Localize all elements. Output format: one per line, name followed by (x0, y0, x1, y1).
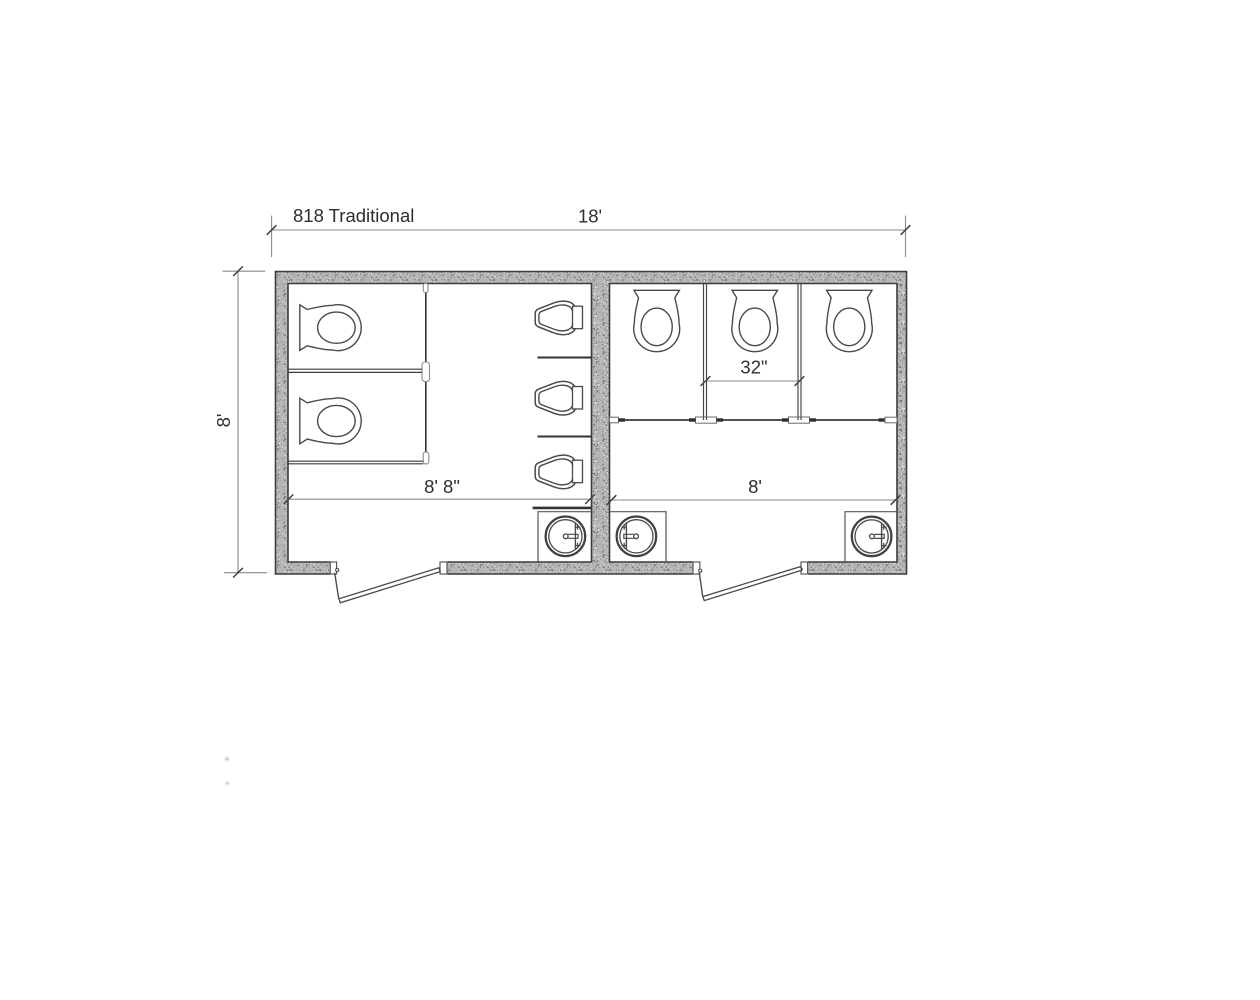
svg-text:32": 32" (740, 357, 767, 378)
svg-text:8' 8": 8' 8" (424, 476, 460, 497)
svg-text:818 Traditional: 818 Traditional (293, 205, 414, 226)
svg-text:18': 18' (578, 206, 602, 227)
svg-text:8': 8' (748, 476, 762, 497)
svg-text:8': 8' (213, 414, 234, 428)
